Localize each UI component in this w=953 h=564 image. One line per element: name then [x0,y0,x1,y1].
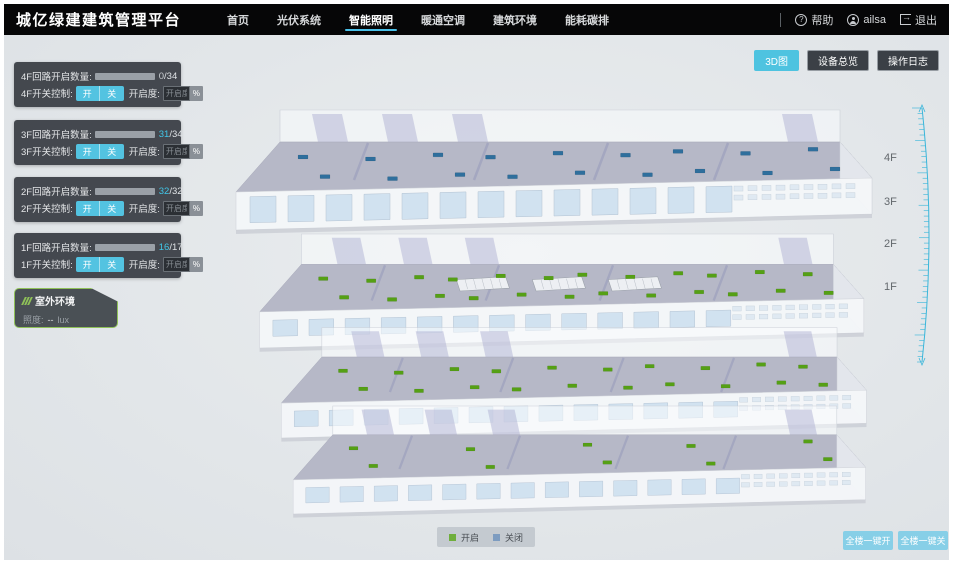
switch-on-button[interactable]: 开 [76,257,100,272]
dim-label: 开启度: [129,257,160,271]
switch-control-label: 3F开关控制: [21,144,73,158]
switch-control-label: 4F开关控制: [21,86,73,100]
dim-label: 开启度: [129,86,160,100]
header-right-cluster: ? 帮助 ailsa → 退出 [780,12,949,28]
percent-suffix: % [190,257,203,272]
brand-title: 城亿绿建建筑管理平台 [4,9,181,30]
top-nav-bar: 城亿绿建建筑管理平台 首页 光伏系统 智能照明 暖通空调 建筑环境 能耗碳排 ?… [4,4,949,35]
circuit-count-label: 4F回路开启数量: [21,69,92,83]
all-floors-off-button[interactable]: 全楼一键关 [898,531,948,550]
floor-tag-3f[interactable]: 3F [884,196,897,208]
operation-log-button[interactable]: 操作日志 [877,50,939,71]
main-nav: 首页 光伏系统 智能照明 暖通空调 建筑环境 能耗碳排 [213,4,623,35]
floor-model-1f [293,406,865,518]
circuit-count-value: 32/32 [159,186,183,197]
user-menu[interactable]: ailsa [847,14,886,26]
nav-item-pv-system[interactable]: 光伏系统 [263,4,335,35]
user-name: ailsa [863,14,886,26]
nav-item-building-env[interactable]: 建筑环境 [479,4,551,35]
switch-group: 开 关 [76,144,124,159]
switch-off-button[interactable]: 关 [100,86,124,101]
circuit-count-label: 1F回路开启数量: [21,240,92,254]
legend-on-icon [449,534,456,541]
dim-input[interactable] [163,86,190,101]
dim-input[interactable] [163,201,190,216]
app-stage: 城亿绿建建筑管理平台 首页 光伏系统 智能照明 暖通空调 建筑环境 能耗碳排 ?… [4,4,949,560]
dim-label: 开启度: [129,144,160,158]
floor-model-4f [236,110,872,234]
env-slashes-icon [23,297,31,305]
dim-input[interactable] [163,144,190,159]
percent-suffix: % [190,144,203,159]
circuit-progress-bar [95,188,155,195]
nav-item-smart-lighting[interactable]: 智能照明 [335,4,407,35]
floor-panel-4f: 4F回路开启数量: 0/34 4F开关控制: 开 关 开启度: % [14,62,181,107]
outdoor-env-title: 室外环境 [35,293,75,308]
circuit-progress-bar [95,244,155,251]
floor-zoom-ruler[interactable] [906,102,940,368]
building-3d-canvas[interactable] [222,88,882,538]
whole-building-controls: 全楼一键开 全楼一键关 [843,531,948,550]
nav-item-energy-carbon[interactable]: 能耗碳排 [551,4,623,35]
switch-off-button[interactable]: 关 [100,144,124,159]
floor-panel-3f: 3F回路开启数量: 31/34 3F开关控制: 开 关 开启度: % [14,120,181,165]
percent-suffix: % [190,201,203,216]
all-floors-on-button[interactable]: 全楼一键开 [843,531,893,550]
switch-control-label: 2F开关控制: [21,201,73,215]
switch-off-button[interactable]: 关 [100,257,124,272]
dim-label: 开启度: [129,201,160,215]
illuminance-value: -- [48,315,54,325]
switch-control-label: 1F开关控制: [21,257,73,271]
help-icon: ? [795,14,807,26]
floor-tag-4f[interactable]: 4F [884,152,897,164]
dim-input[interactable] [163,257,190,272]
floor-panel-2f: 2F回路开启数量: 32/32 2F开关控制: 开 关 开启度: % [14,177,181,222]
circuit-progress-bar [95,73,155,80]
circuit-count-label: 3F回路开启数量: [21,127,92,141]
circuit-progress-bar [95,131,155,138]
legend-on-label: 开启 [461,531,479,544]
circuit-count-label: 2F回路开启数量: [21,184,92,198]
floor-tag-2f[interactable]: 2F [884,238,897,250]
legend-off-icon [493,534,500,541]
nav-item-home[interactable]: 首页 [213,4,263,35]
floor-panel-1f: 1F回路开启数量: 16/17 1F开关控制: 开 关 开启度: % [14,233,181,278]
view-3d-button[interactable]: 3D图 [754,50,799,71]
circuit-count-value: 16/17 [159,242,183,253]
switch-group: 开 关 [76,86,124,101]
logout-link[interactable]: → 退出 [900,12,937,28]
switch-on-button[interactable]: 开 [76,86,100,101]
illuminance-label: 照度: [23,313,44,326]
view-switch-buttons: 3D图 设备总览 操作日志 [754,50,939,71]
circuit-count-value: 31/34 [159,129,183,140]
floor-tag-1f[interactable]: 1F [884,281,897,293]
header-divider [780,13,781,27]
switch-off-button[interactable]: 关 [100,201,124,216]
illuminance-unit: lux [58,315,70,325]
device-overview-button[interactable]: 设备总览 [807,50,869,71]
switch-group: 开 关 [76,257,124,272]
switch-on-button[interactable]: 开 [76,201,100,216]
nav-item-hvac[interactable]: 暖通空调 [407,4,479,35]
switch-group: 开 关 [76,201,124,216]
help-link[interactable]: ? 帮助 [795,12,833,28]
user-icon [847,14,859,26]
legend-off-label: 关闭 [505,531,523,544]
circuit-count-value: 0/34 [159,71,178,82]
outdoor-env-panel: 室外环境 照度: -- lux [14,288,118,328]
logout-icon: → [900,14,911,25]
lighting-legend: 开启 关闭 [437,527,535,547]
percent-suffix: % [190,86,203,101]
switch-on-button[interactable]: 开 [76,144,100,159]
